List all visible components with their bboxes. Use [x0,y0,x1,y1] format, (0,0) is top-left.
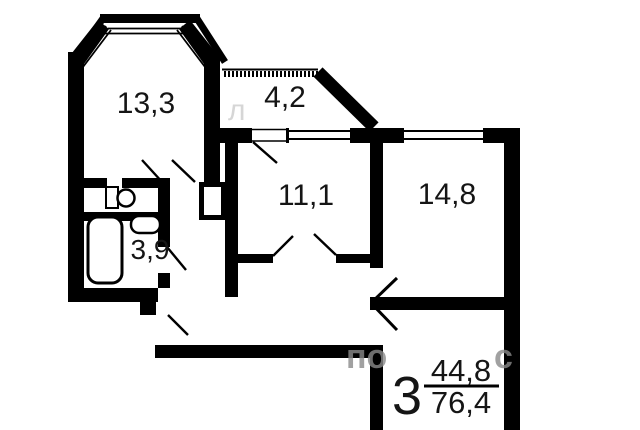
bathtub-icon [88,217,122,283]
wardrobe-niche [199,182,226,220]
wall-entry [370,297,504,310]
sink-icon [131,216,160,233]
wall-right-outer [504,128,520,430]
toilet-tank-icon [106,187,118,208]
wall-segment [84,178,107,188]
door-swing [253,142,277,163]
loggia-diagonal-wall [318,72,374,127]
bath-3-9-label: 3,9 [131,234,170,265]
door-swing [273,236,293,256]
watermark-fragment: по [346,338,387,376]
door-swing [172,160,195,182]
total-area-label: 76,4 [431,385,491,420]
wall-hall-room11 [225,128,238,297]
watermark-fragment: с [494,338,513,376]
window-room-11-1 [286,128,353,143]
room-14-8-label: 14,8 [418,178,476,211]
area-summary: 3 44,8 76,4 [392,353,499,426]
door-swing [168,315,188,335]
room-11-1-label: 11,1 [278,179,334,212]
door-swing [314,234,336,255]
toilet-icon [118,190,135,207]
rooms-count-label: 3 [392,366,422,426]
wall-segment [485,128,520,143]
wall-segment [237,254,273,263]
room-labels: 13,3 4,2 11,1 14,8 3,9 [117,81,476,265]
wall-segment [158,273,170,288]
wall-room11-room14 [370,132,383,268]
bay-top-wall [100,14,200,23]
floorplan-page: 13,3 4,2 11,1 14,8 3,9 3 44,8 76,4 л по … [0,0,640,430]
living-area-label: 44,8 [431,353,491,388]
window-room-14-8 [401,128,486,143]
room-13-3-label: 13,3 [117,87,175,120]
wall-segment [336,254,370,263]
door-swing [167,247,186,270]
wall-step [140,288,156,315]
loggia-4-2-label: 4,2 [264,81,306,114]
parapet-hatch [222,71,318,77]
watermark-fragment: л [228,94,246,127]
door-swings [142,142,336,335]
balcony-door-opening [252,130,287,142]
bay-window [68,17,225,92]
window-wall-row [204,128,520,143]
floorplan-svg: 13,3 4,2 11,1 14,8 3,9 3 44,8 76,4 л по … [0,0,640,430]
wall-wc-right [158,178,170,212]
